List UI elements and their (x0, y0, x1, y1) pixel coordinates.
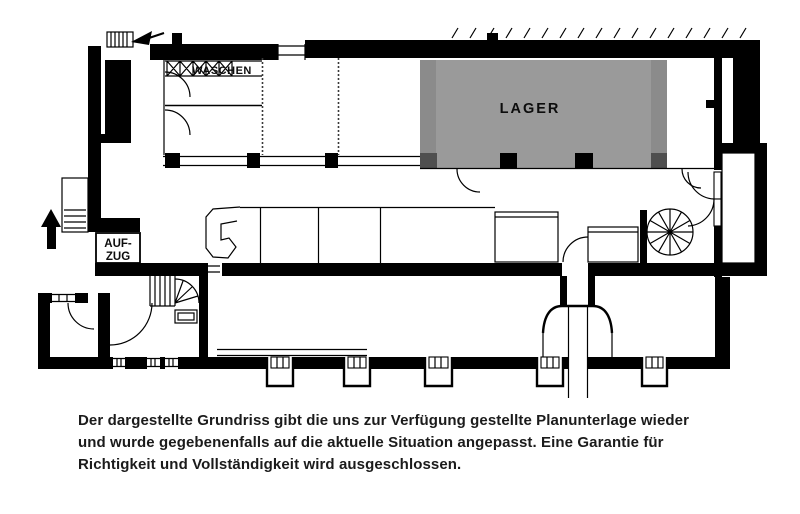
entry-arrow-icon (131, 31, 164, 45)
scanned-floor-plan-page: LAGER (0, 0, 800, 514)
floor-plan: LAGER (0, 0, 800, 404)
disclaimer-line: Richtigkeit und Vollständigkeit wird aus… (78, 454, 784, 476)
storage-stipple-right (651, 60, 667, 168)
elevator-label-line1: AUF- (104, 238, 132, 250)
spiral-staircase-icon (647, 209, 693, 255)
washing-label: WASCHEN (192, 65, 252, 77)
elevator-label: AUF- ZUG (96, 233, 140, 263)
disclaimer-line: Der dargestellte Grundriss gibt die uns … (78, 410, 784, 432)
winding-staircase-icon (150, 272, 199, 323)
storage-stipple-left (420, 60, 436, 168)
disclaimer-line: und wurde gegebenenfalls auf die aktuell… (78, 432, 784, 454)
wall-windows (52, 294, 178, 367)
storage-area: LAGER (420, 60, 667, 168)
entrance-passage (543, 276, 612, 398)
north-arrow-icon (41, 209, 61, 249)
side-staircase-icon (62, 178, 88, 232)
arched-doorway (543, 306, 612, 333)
entry-staircase-icon (107, 32, 133, 47)
elevator-label-line2: ZUG (106, 251, 130, 263)
disclaimer-text: Der dargestellte Grundriss gibt die uns … (78, 410, 784, 476)
washing-area: WASCHEN (165, 61, 262, 77)
storage-label: LAGER (500, 101, 561, 117)
